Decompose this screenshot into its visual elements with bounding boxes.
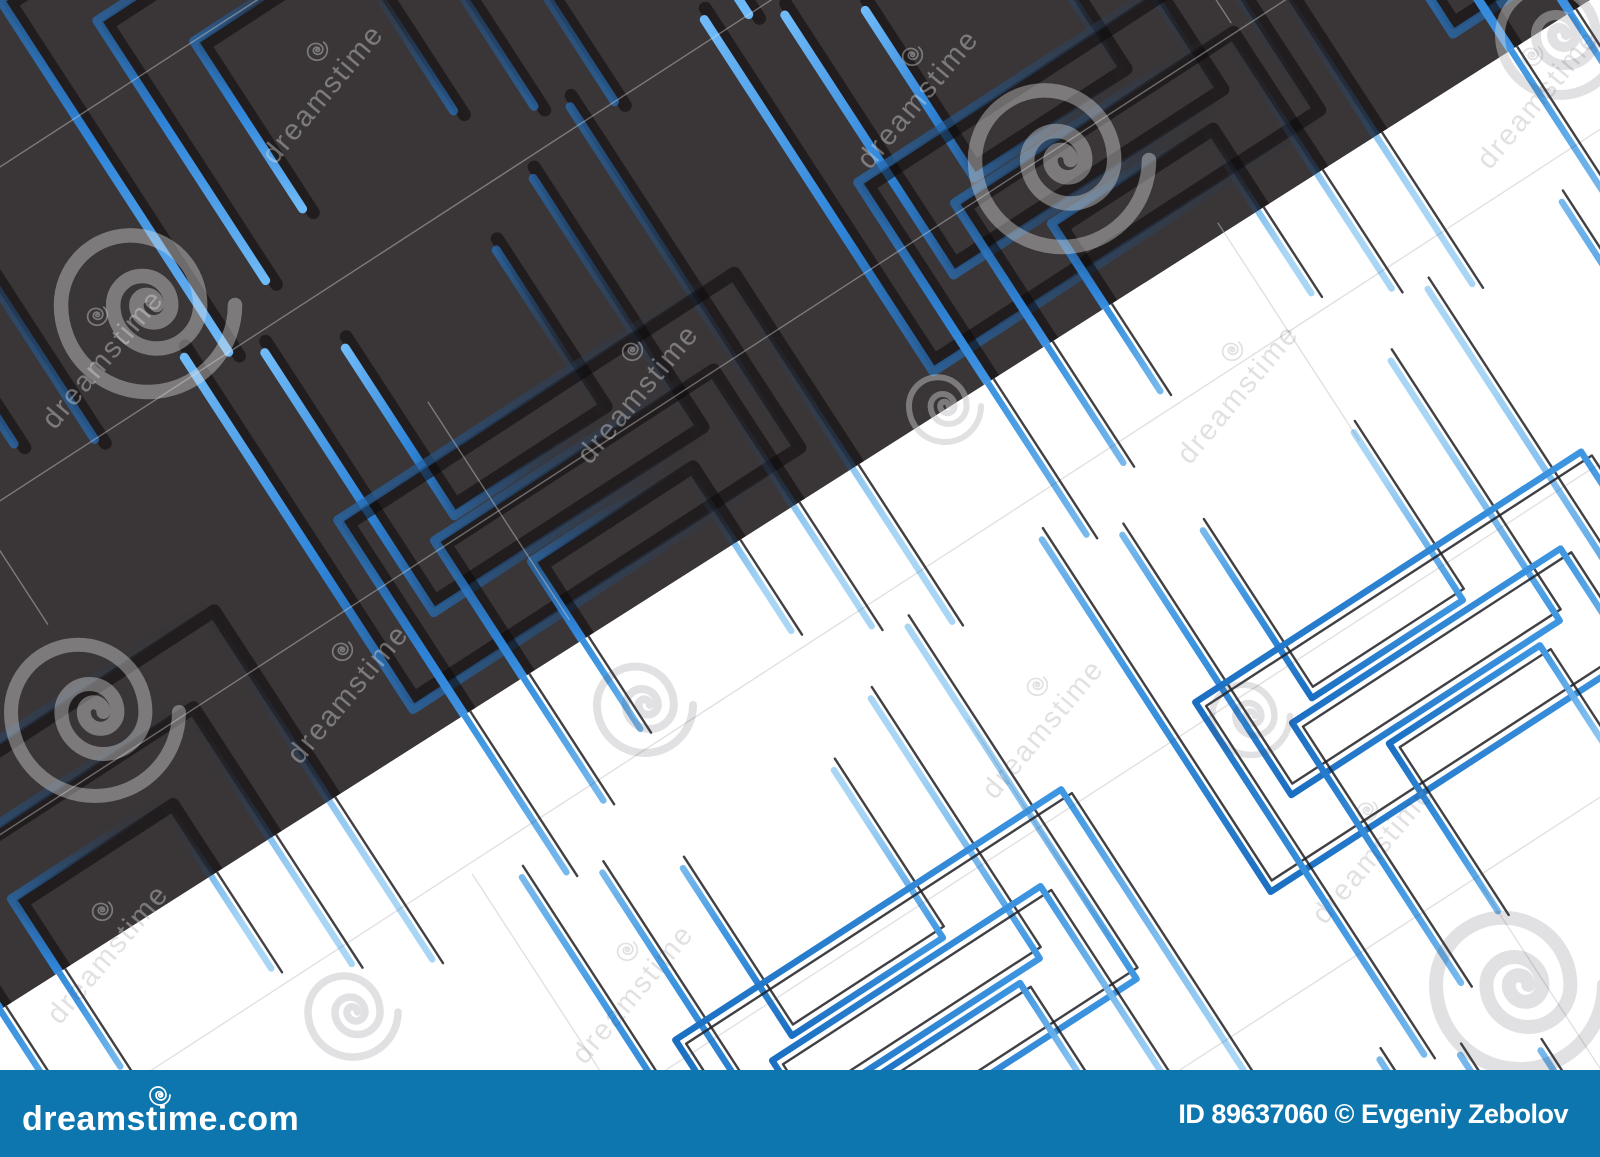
footer-credit-text: ID 89637060 © Evgeniy Zebolov — [1178, 1099, 1568, 1130]
stock-photo-preview: dreamstime — [0, 0, 1600, 1157]
footer-bar: dreamstime.com ID 89637060 © Evgeniy Zeb… — [0, 1070, 1600, 1157]
artwork-canvas: dreamstime — [0, 0, 1600, 1157]
footer-logo: dreamstime.com — [22, 1100, 299, 1139]
footer-logo-spiral-icon — [148, 1083, 172, 1107]
